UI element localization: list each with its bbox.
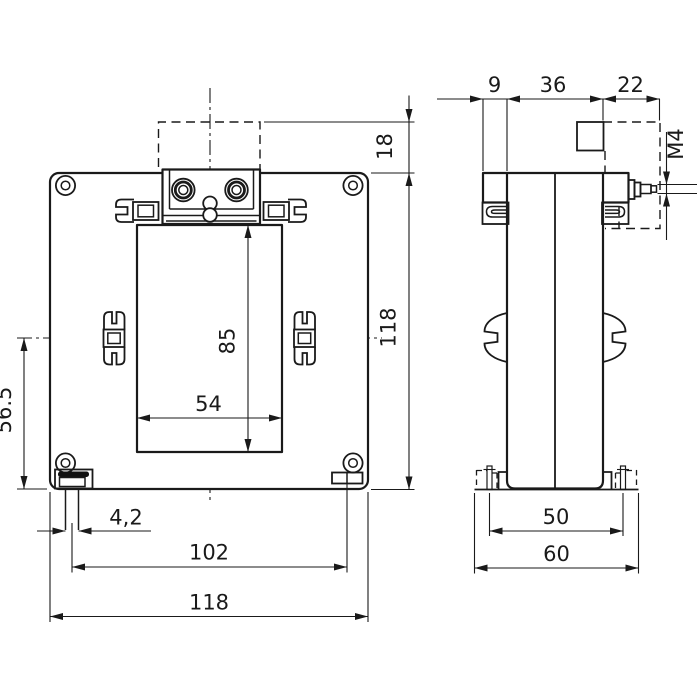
technical-drawing-current-transformer: 18 118 85 54 56.5 4,2 xyxy=(0,0,700,700)
dim-label-flange-offset: 9 xyxy=(488,73,501,97)
dim-center-to-bottom: 56.5 xyxy=(0,338,47,489)
dim-label-slot-width: 4,2 xyxy=(109,506,142,530)
clip-edge-outer xyxy=(605,207,625,218)
foot-hidden-right xyxy=(616,466,637,490)
clip-edge-inner xyxy=(492,210,507,213)
side-clip-bulge-left xyxy=(485,313,508,362)
foot-spring-bar xyxy=(58,472,89,478)
terminal-block xyxy=(163,170,261,225)
dim-label-foot-spacing: 102 xyxy=(189,541,229,565)
dim-label-window-height: 85 xyxy=(216,328,240,355)
stud-tip xyxy=(651,186,657,192)
dim-label-width: 118 xyxy=(189,591,229,615)
clip-edge-outer xyxy=(487,207,507,218)
clip-edge-inner xyxy=(605,210,620,213)
dim-label-window-width: 54 xyxy=(195,392,222,416)
m4-terminal-stud xyxy=(629,180,657,199)
dim-top-depths: 9 36 22 xyxy=(437,73,660,171)
foot-hidden-left xyxy=(477,466,498,490)
stud-shaft xyxy=(641,185,652,194)
dim-label-overall: 60 xyxy=(543,542,570,566)
dim-slot-width: 4,2 xyxy=(37,506,151,535)
clip-block xyxy=(104,330,125,348)
cover-notch xyxy=(577,122,604,151)
dim-label-terminal-depth: 22 xyxy=(617,73,644,97)
side-clip-bulge-right xyxy=(603,313,626,362)
flange-pocket-left xyxy=(483,203,509,225)
dim-label-base: 50 xyxy=(543,505,570,529)
dim-base: 50 xyxy=(490,493,624,536)
drawing-svg: 18 118 85 54 56.5 4,2 xyxy=(0,0,700,700)
dim-label-height: 118 xyxy=(377,307,401,347)
extension-lines xyxy=(658,185,698,194)
side-view: 9 36 22 M4 50 60 xyxy=(437,73,697,574)
dim-label-center-to-bottom: 56.5 xyxy=(0,387,16,434)
flange-pocket-right xyxy=(602,203,629,225)
dim-thread: M4 xyxy=(658,128,698,240)
dim-label-protrusion: 18 xyxy=(373,133,397,160)
extension-lines xyxy=(483,99,660,171)
hidden-terminal-cover-side xyxy=(603,122,660,229)
dim-label-thread: M4 xyxy=(664,128,688,159)
seal-hole-lower xyxy=(203,208,217,222)
front-view: 18 118 85 54 56.5 4,2 xyxy=(0,88,415,622)
stud-nut xyxy=(635,183,641,197)
dim-label-depth: 36 xyxy=(540,73,567,97)
